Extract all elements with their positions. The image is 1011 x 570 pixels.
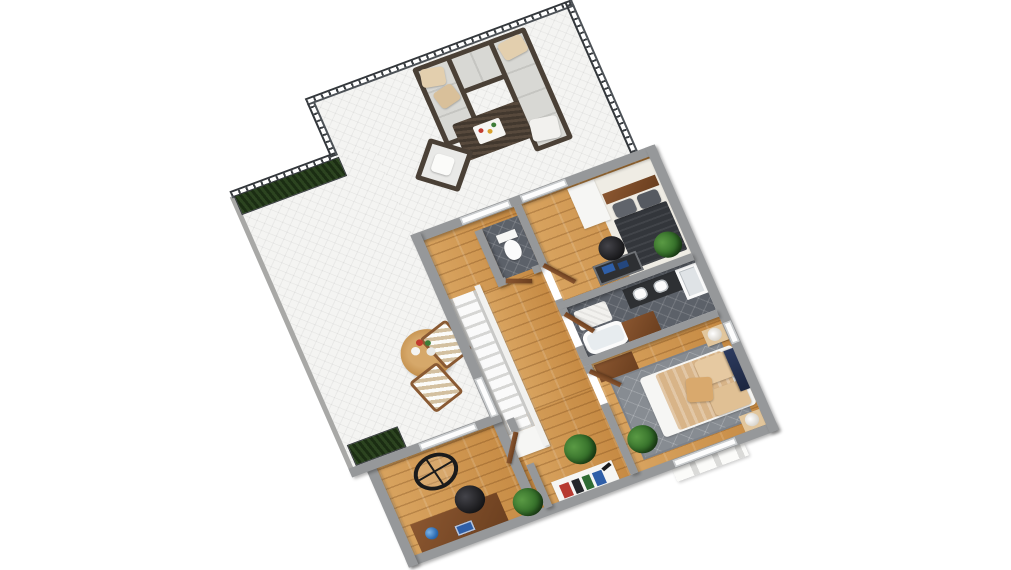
sofa-pillow — [419, 66, 446, 88]
master-accent-pillow — [685, 377, 713, 403]
floorplan-render — [0, 0, 1011, 570]
door-wc — [506, 279, 532, 284]
floorplan — [210, 0, 801, 570]
